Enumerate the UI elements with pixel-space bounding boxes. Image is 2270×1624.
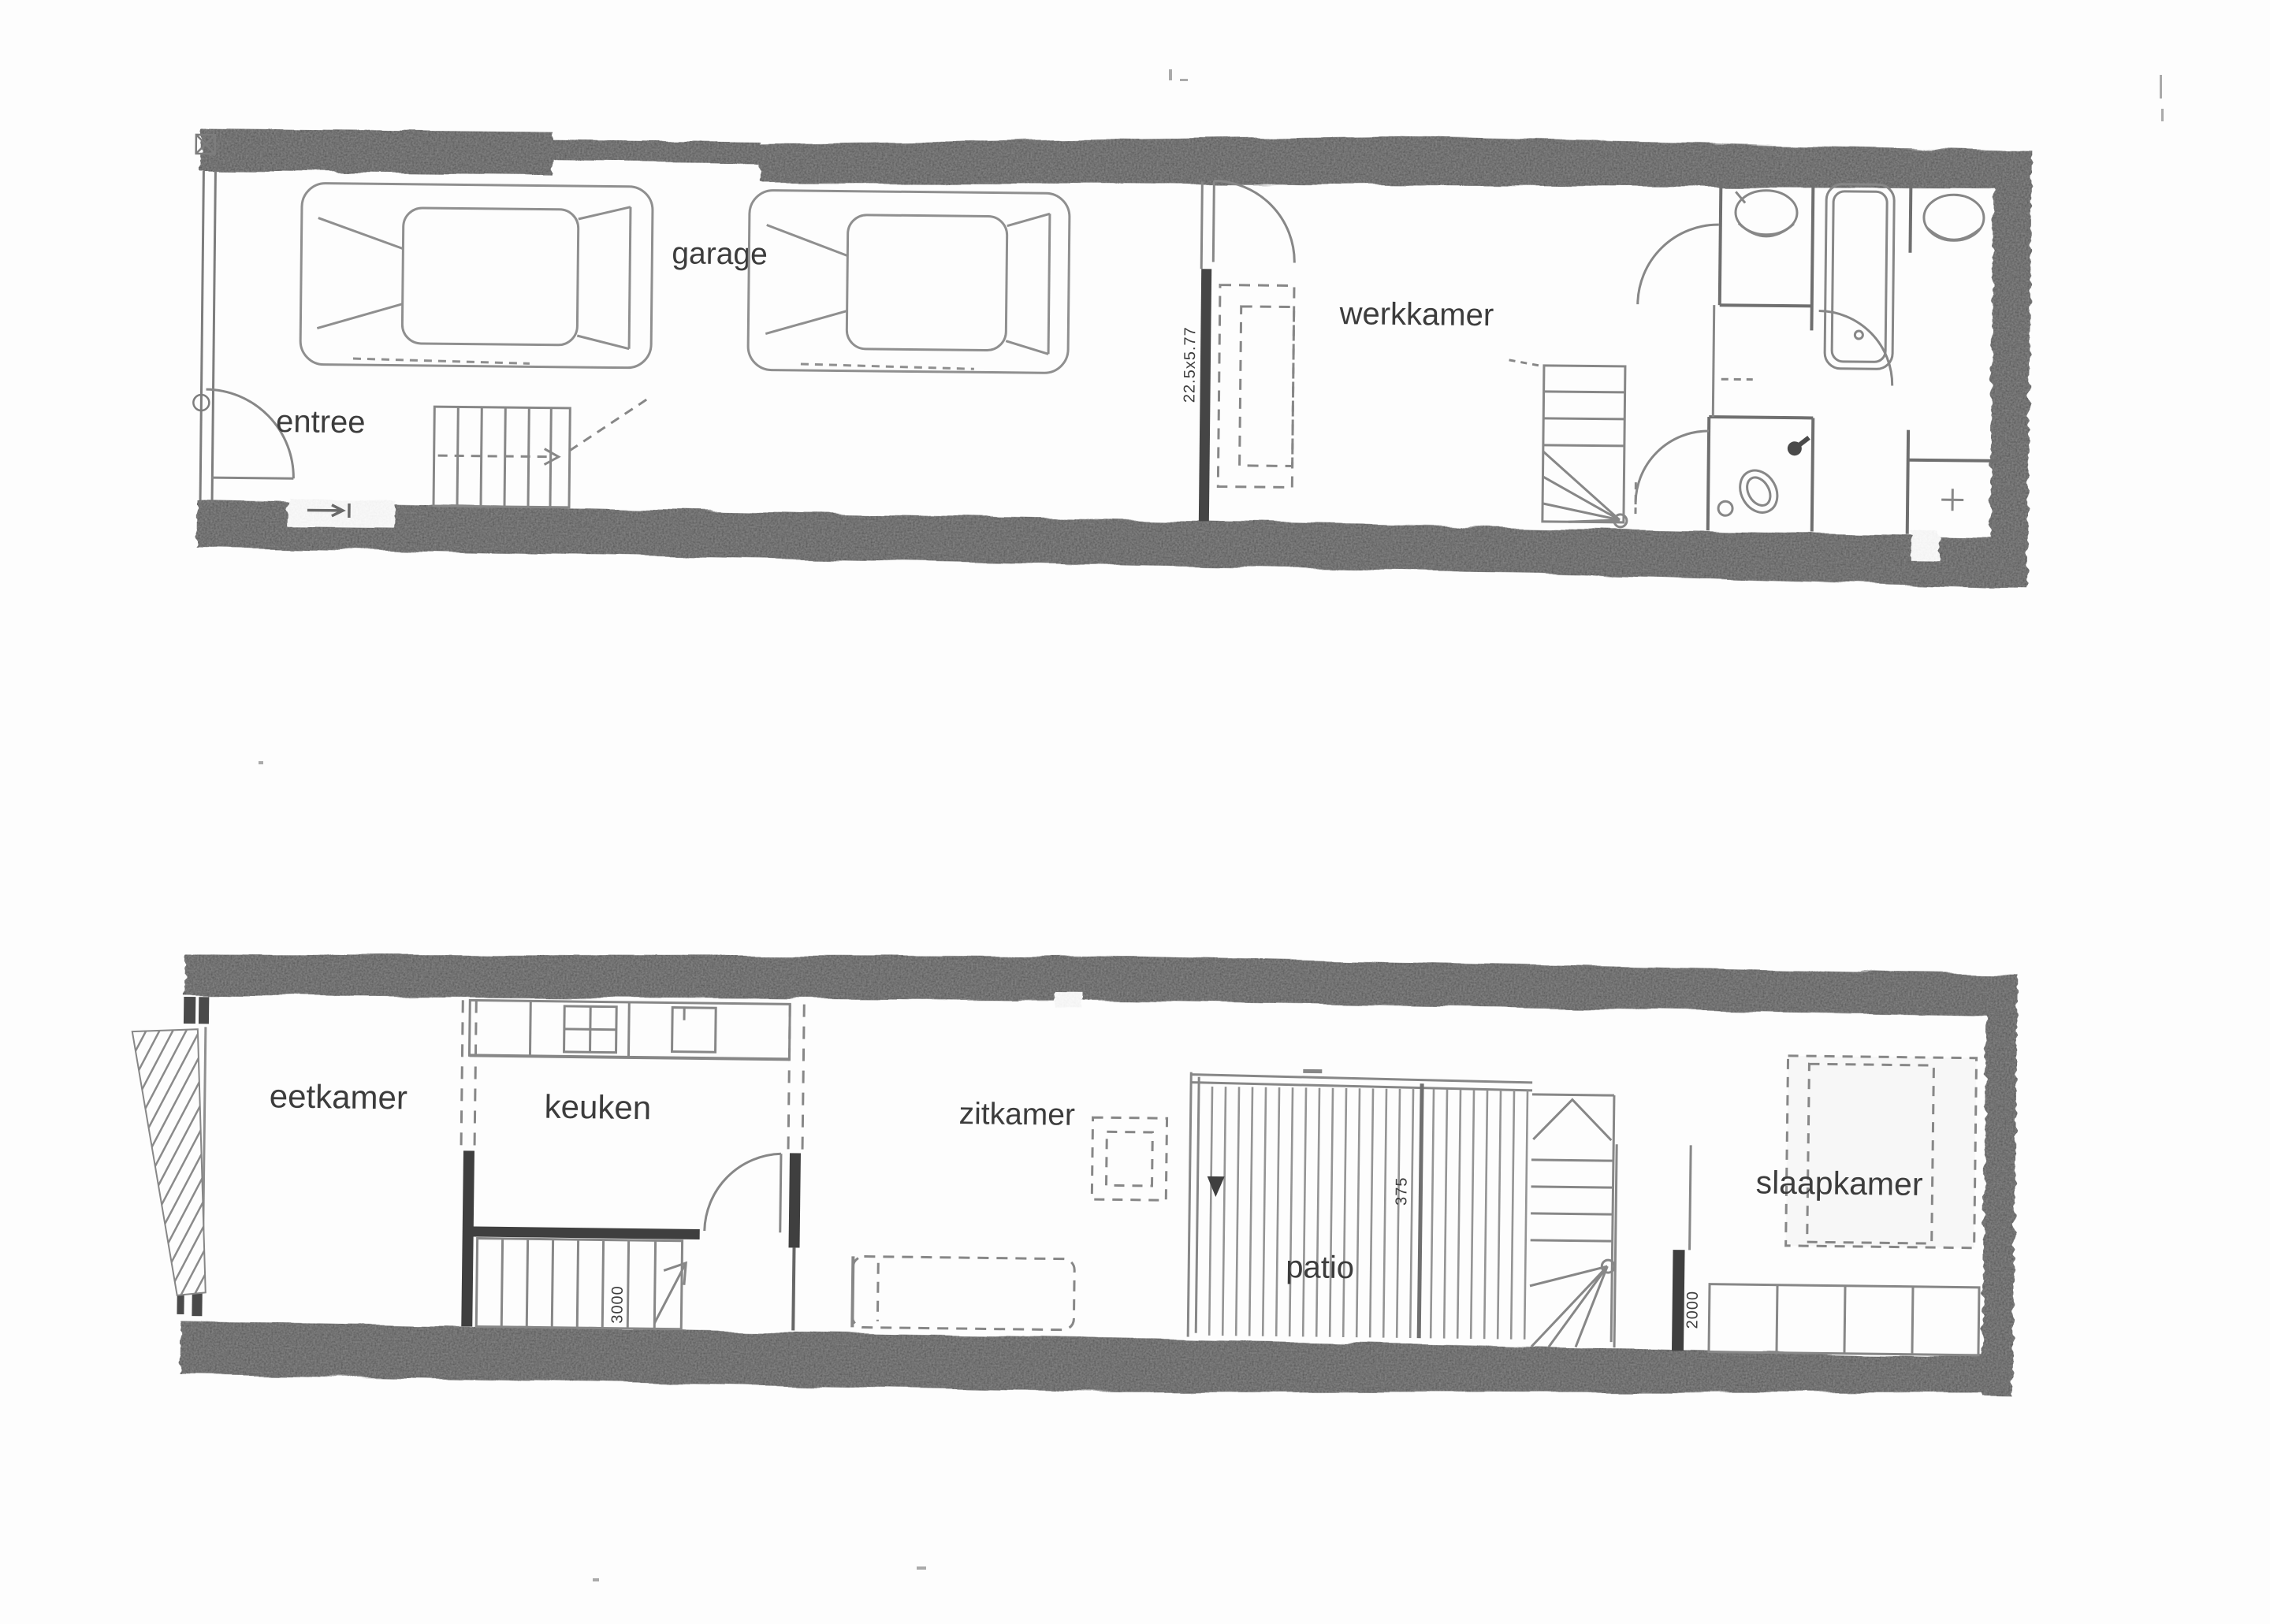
svg-text:22.5x5.77: 22.5x5.77 [1181, 326, 1199, 403]
svg-text:375: 375 [1393, 1176, 1410, 1206]
svg-text:3000: 3000 [608, 1285, 627, 1324]
svg-text:zitkamer: zitkamer [958, 1097, 1075, 1132]
svg-text:2000: 2000 [1684, 1291, 1702, 1329]
svg-text:werkkamer: werkkamer [1338, 296, 1494, 333]
svg-text:slaapkamer: slaapkamer [1755, 1164, 1922, 1202]
svg-text:eetkamer: eetkamer [270, 1077, 408, 1116]
svg-text:patio: patio [1286, 1250, 1354, 1285]
svg-text:keuken: keuken [544, 1088, 651, 1127]
svg-text:entree: entree [276, 404, 366, 440]
svg-text:garage: garage [672, 236, 768, 271]
